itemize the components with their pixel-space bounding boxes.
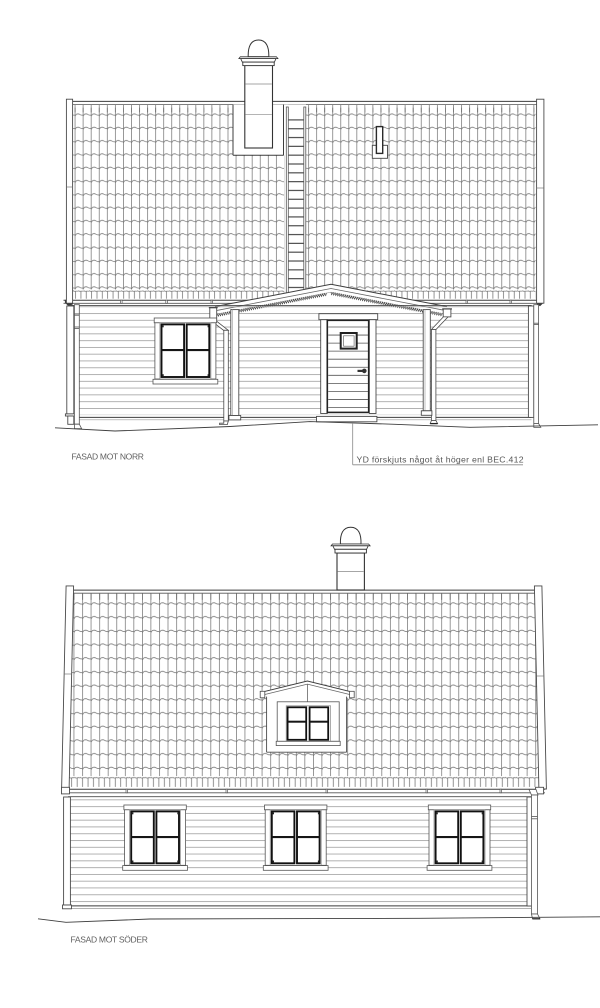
svg-text:YD förskjuts något åt höger en: YD förskjuts något åt höger enl BEC.412 — [357, 454, 524, 464]
svg-text:FASAD MOT NORR: FASAD MOT NORR — [72, 452, 144, 462]
svg-text:FASAD MOT SÖDER: FASAD MOT SÖDER — [71, 935, 148, 945]
